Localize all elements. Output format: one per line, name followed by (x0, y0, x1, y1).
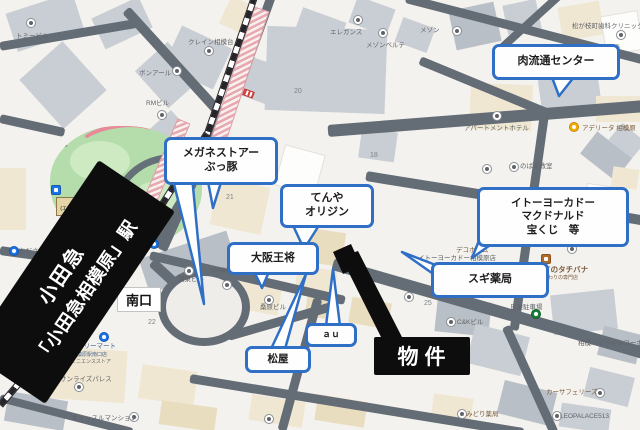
map-label: エレガンス (330, 29, 362, 37)
map-pin-icon (509, 162, 519, 172)
map-pin-icon (492, 111, 502, 121)
map-label: 日栄駐車場 (510, 304, 543, 312)
map-label: みどり薬局 (466, 411, 499, 419)
map-pin-icon (172, 66, 182, 76)
convenience-store-pin-icon (99, 332, 109, 342)
map-label: アデリータ 相模原 (582, 125, 636, 133)
map-label: のばえ教室 (520, 163, 553, 171)
map-pin-icon (482, 164, 492, 174)
map-label: C&Kビル (457, 319, 483, 327)
station-plaza (158, 268, 250, 346)
property-label: 物件 (374, 337, 470, 375)
map-label: 桑原ビル (260, 304, 286, 312)
callout-meat-center: 肉流通センター (492, 44, 620, 80)
map-label: メゾン (420, 27, 440, 35)
map-pin-icon (569, 122, 579, 132)
block-number: 20 (294, 88, 302, 95)
plaza-icon (9, 246, 19, 256)
map-canvas: トミービル クレイン相模台 ボンアール RMビル エレガンス メゾンベルテ メゾ… (0, 0, 640, 430)
building (210, 177, 271, 235)
map-pin-icon (157, 110, 167, 120)
north-exit-icon (51, 185, 61, 195)
map-pin-icon (222, 280, 232, 290)
callout-tenya-origin: てんや オリジン (280, 184, 374, 228)
map-label: アパートメントホテル (464, 125, 529, 133)
block-number: 22 (148, 319, 156, 326)
map-pin-icon (446, 317, 456, 327)
map-pin-icon (204, 46, 214, 56)
map-label: ボンアール (139, 70, 171, 78)
map-pin-icon (404, 292, 414, 302)
block-number: 21 (226, 194, 234, 201)
map-label: 相模ハイラインコーポ (578, 340, 640, 348)
map-label: カーサフェリーズ (546, 389, 598, 397)
map-label: キャッスルマンション (72, 415, 137, 423)
building (19, 41, 106, 129)
callout-osaka-ohsho: 大阪王将 (227, 242, 319, 275)
building (0, 168, 26, 230)
building (159, 400, 218, 430)
map-label: サンライズパレス (60, 376, 112, 384)
building (583, 367, 635, 407)
map-label: 松が枝町歯科クリニック (572, 23, 640, 31)
map-pin-icon (264, 414, 274, 424)
map-label: RMビル (146, 100, 169, 108)
south-exit-label: 南口 (117, 287, 161, 312)
block-number: 25 (424, 300, 432, 307)
map-pin-icon (452, 26, 462, 36)
map-pin-icon (616, 30, 626, 40)
building (138, 364, 198, 405)
map-label: 湖東ビル (178, 276, 204, 284)
map-pin-icon (184, 266, 194, 276)
map-pin-icon (26, 18, 36, 28)
callout-sugi-pharmacy: スギ薬局 (431, 262, 549, 298)
callout-au: ａｕ (305, 323, 357, 347)
map-label: トミービル (16, 33, 49, 41)
map-label: メゾンベルテ (366, 42, 405, 50)
callout-matsuya: 松屋 (245, 346, 311, 373)
building (265, 26, 388, 114)
map-pin-icon (353, 15, 363, 25)
callout-itoyokado: イトーヨーカドー マクドナルド 宝くじ 等 (477, 187, 629, 247)
map-pin-icon (378, 28, 388, 38)
map-label: クレイン相模台 (188, 39, 234, 47)
block-number: 18 (370, 152, 378, 159)
map-label: LEOPALACE513 (560, 413, 609, 421)
map-label: デコホーム (456, 247, 488, 255)
callout-megane-store: メガネストアー ぶっ豚 (164, 137, 278, 185)
